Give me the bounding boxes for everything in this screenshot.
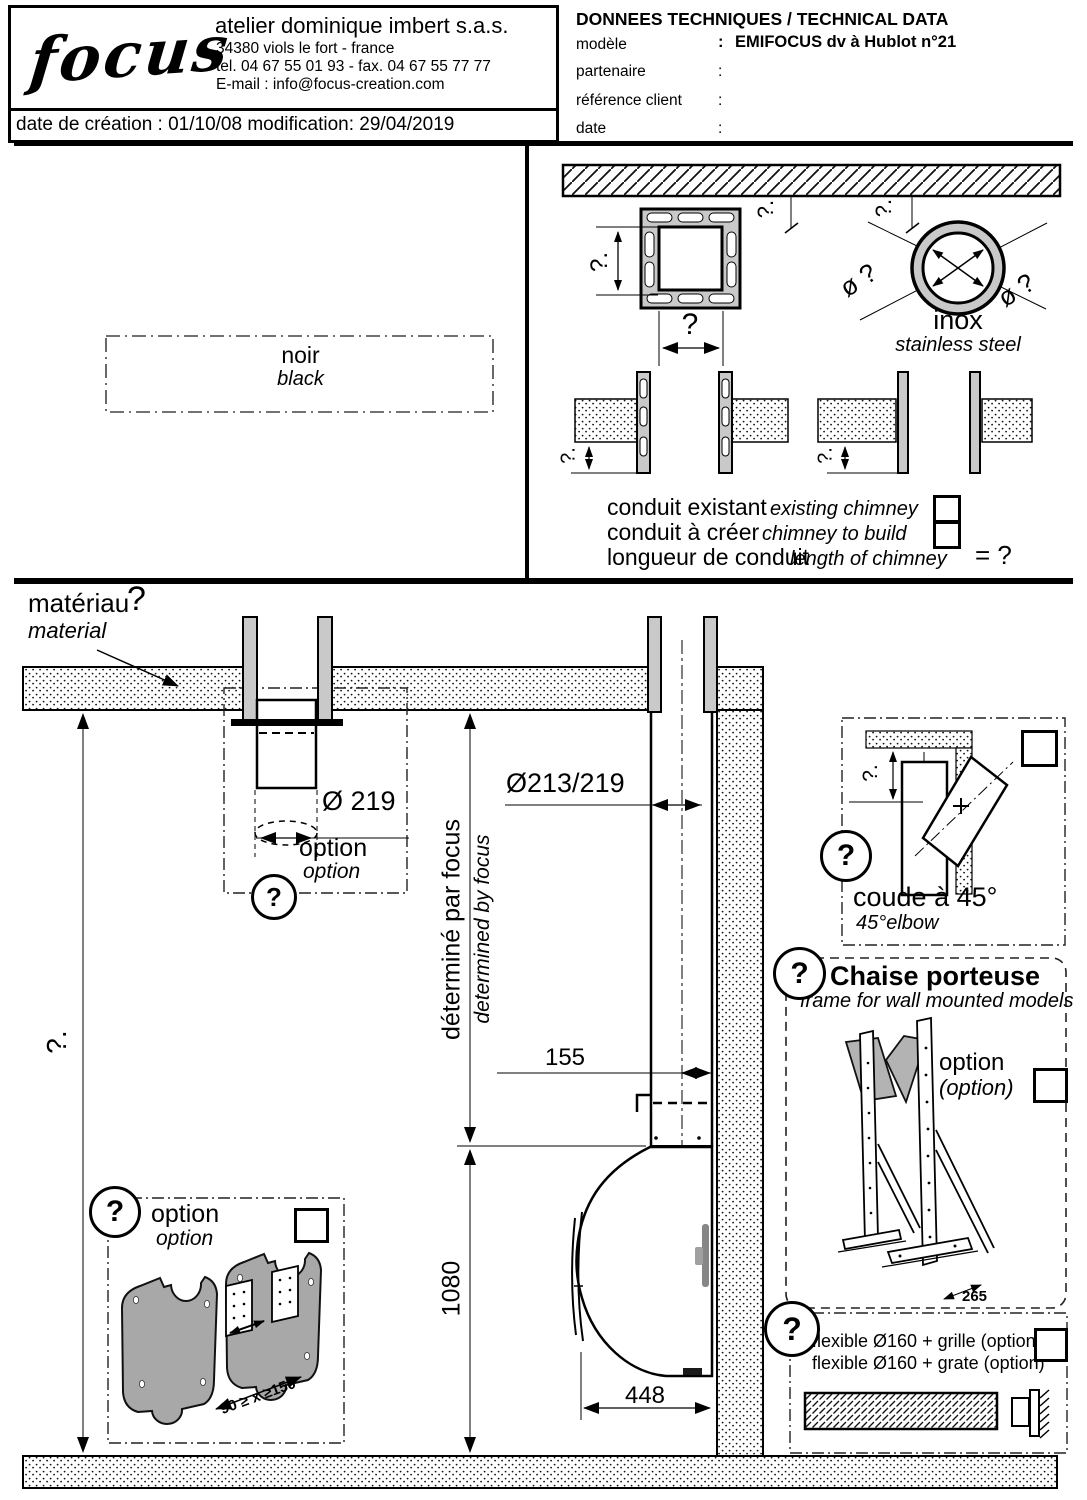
square-height-question[interactable]: ?. [586,242,614,282]
ceiling-hatch-band [563,165,1060,196]
longueur-conduit-label-fr: longueur de conduit [607,544,809,571]
frame-option-label-fr: option [939,1049,1004,1077]
field-value-modele[interactable]: EMIFOCUS dv à Hublot n°21 [735,33,956,52]
floor-depth-question-left[interactable]: ?. [558,436,581,476]
field-colon-partenaire: : [718,63,722,81]
room-height-question[interactable]: ?. [41,1002,73,1082]
company-email: E-mail : info@focus-creation.com [216,76,445,94]
main-flue-pipe [648,617,717,1150]
header-box-divider [8,108,556,111]
wall-band [717,710,763,1488]
field-colon-date: : [718,120,722,138]
field-label-reference: référence client [576,92,682,110]
flexible-label-en: flexible Ø160 + grate (option) [812,1353,1045,1374]
conduit-existant-label-en: existing chimney [770,498,918,521]
elbow-label-en: 45°elbow [856,912,939,935]
color-label-en: black [108,368,493,391]
determined-by-focus-en: determined by focus [471,779,495,1079]
color-label-fr: noir [108,342,493,369]
conduit-creer-label-en: chimney to build [762,523,907,546]
field-label-date: date [576,120,606,138]
option-pipe-diameter: Ø 219 [322,786,396,817]
field-label-partenaire: partenaire [576,63,646,81]
chimney-to-build-checkbox[interactable] [933,521,961,549]
company-telfax: tel. 04 67 55 01 93 - fax. 04 67 55 77 7… [216,58,491,76]
frame-subtitle-en: frame for wall mounted models [800,990,1070,1013]
vertical-divider [525,141,529,584]
ceiling-offset-question-1[interactable]: ?. [753,189,779,229]
ceiling-option-label-en: option [303,860,360,884]
flexible-option-checkbox[interactable] [1034,1328,1068,1362]
grille-symbol [1012,1390,1049,1438]
field-colon-modele: : [718,33,724,52]
shield-option-checkbox[interactable] [294,1208,329,1243]
square-width-question[interactable]: ? [668,308,712,342]
flexible-question-badge[interactable]: ? [764,1301,820,1357]
field-label-modele: modèle [576,36,627,54]
square-flue-floor-crossing [571,372,788,473]
technical-drawing-canvas [0,0,1087,1500]
floor-depth-question-right[interactable]: ?. [815,436,838,476]
chimney-length-question[interactable]: = ? [975,540,1012,571]
dim-155-label: 155 [530,1044,600,1072]
shield-option-label-en: option [156,1227,213,1251]
floor-band [23,1456,1057,1488]
square-flue-section [596,209,740,366]
materiau-question[interactable]: ? [127,580,146,619]
ceiling-offset-marks [785,196,919,233]
longueur-conduit-label-en: length of chimney [790,548,947,571]
ceiling-option-label-fr: option [299,834,367,863]
inox-label-en: stainless steel [858,334,1058,357]
focus-logo: focus [26,11,234,99]
frame-title-fr: Chaise porteuse [810,961,1060,992]
elbow-question-badge[interactable]: ? [820,830,872,882]
determined-by-focus-fr: déterminé par focus [438,760,467,1100]
elbow-offset-question[interactable]: ?. [859,753,883,793]
materiau-label-en: material [28,618,106,644]
round-flue-floor-crossing [818,372,1032,473]
ceiling-option-question-badge[interactable]: ? [251,874,297,920]
conduit-creer-label-fr: conduit à créer [607,519,759,546]
frame-option-label-en: (option) [939,1075,1014,1101]
flexible-label-fr: flexible Ø160 + grille (option) [812,1331,1042,1352]
flue-diameter-label: Ø213/219 [506,768,625,799]
frame-base-dim-265: 265 [962,1288,987,1305]
conduit-existant-label-fr: conduit existant [607,494,767,521]
inox-label-fr: inox [858,305,1058,336]
shield-question-badge[interactable]: ? [89,1186,141,1238]
elbow-label-fr: coude à 45° [853,882,997,913]
dim-1080-label: 1080 [438,1209,467,1369]
fireplace-body [572,1095,712,1376]
materiau-label-fr: matériau [28,588,129,619]
frame-question-badge[interactable]: ? [773,947,826,1000]
creation-date-line: date de création : 01/10/08 modification… [16,114,454,136]
field-colon-reference: : [718,92,722,110]
existing-chimney-checkbox[interactable] [933,495,961,523]
technical-datasheet-page: focus atelier dominique imbert s.a.s. 34… [0,0,1087,1500]
techdata-title: DONNEES TECHNIQUES / TECHNICAL DATA [576,9,948,30]
elbow-option-checkbox[interactable] [1021,730,1058,767]
top-section-divider [14,141,1073,146]
frame-option-checkbox[interactable] [1033,1068,1068,1103]
mid-section-divider [14,578,1073,584]
dim-448-label: 448 [595,1382,695,1410]
company-name: atelier dominique imbert s.a.s. [215,13,508,39]
shield-option-label-fr: option [151,1200,219,1229]
ceiling-offset-question-2[interactable]: ?. [871,188,897,228]
company-address: 34380 viols le fort - france [216,40,394,58]
